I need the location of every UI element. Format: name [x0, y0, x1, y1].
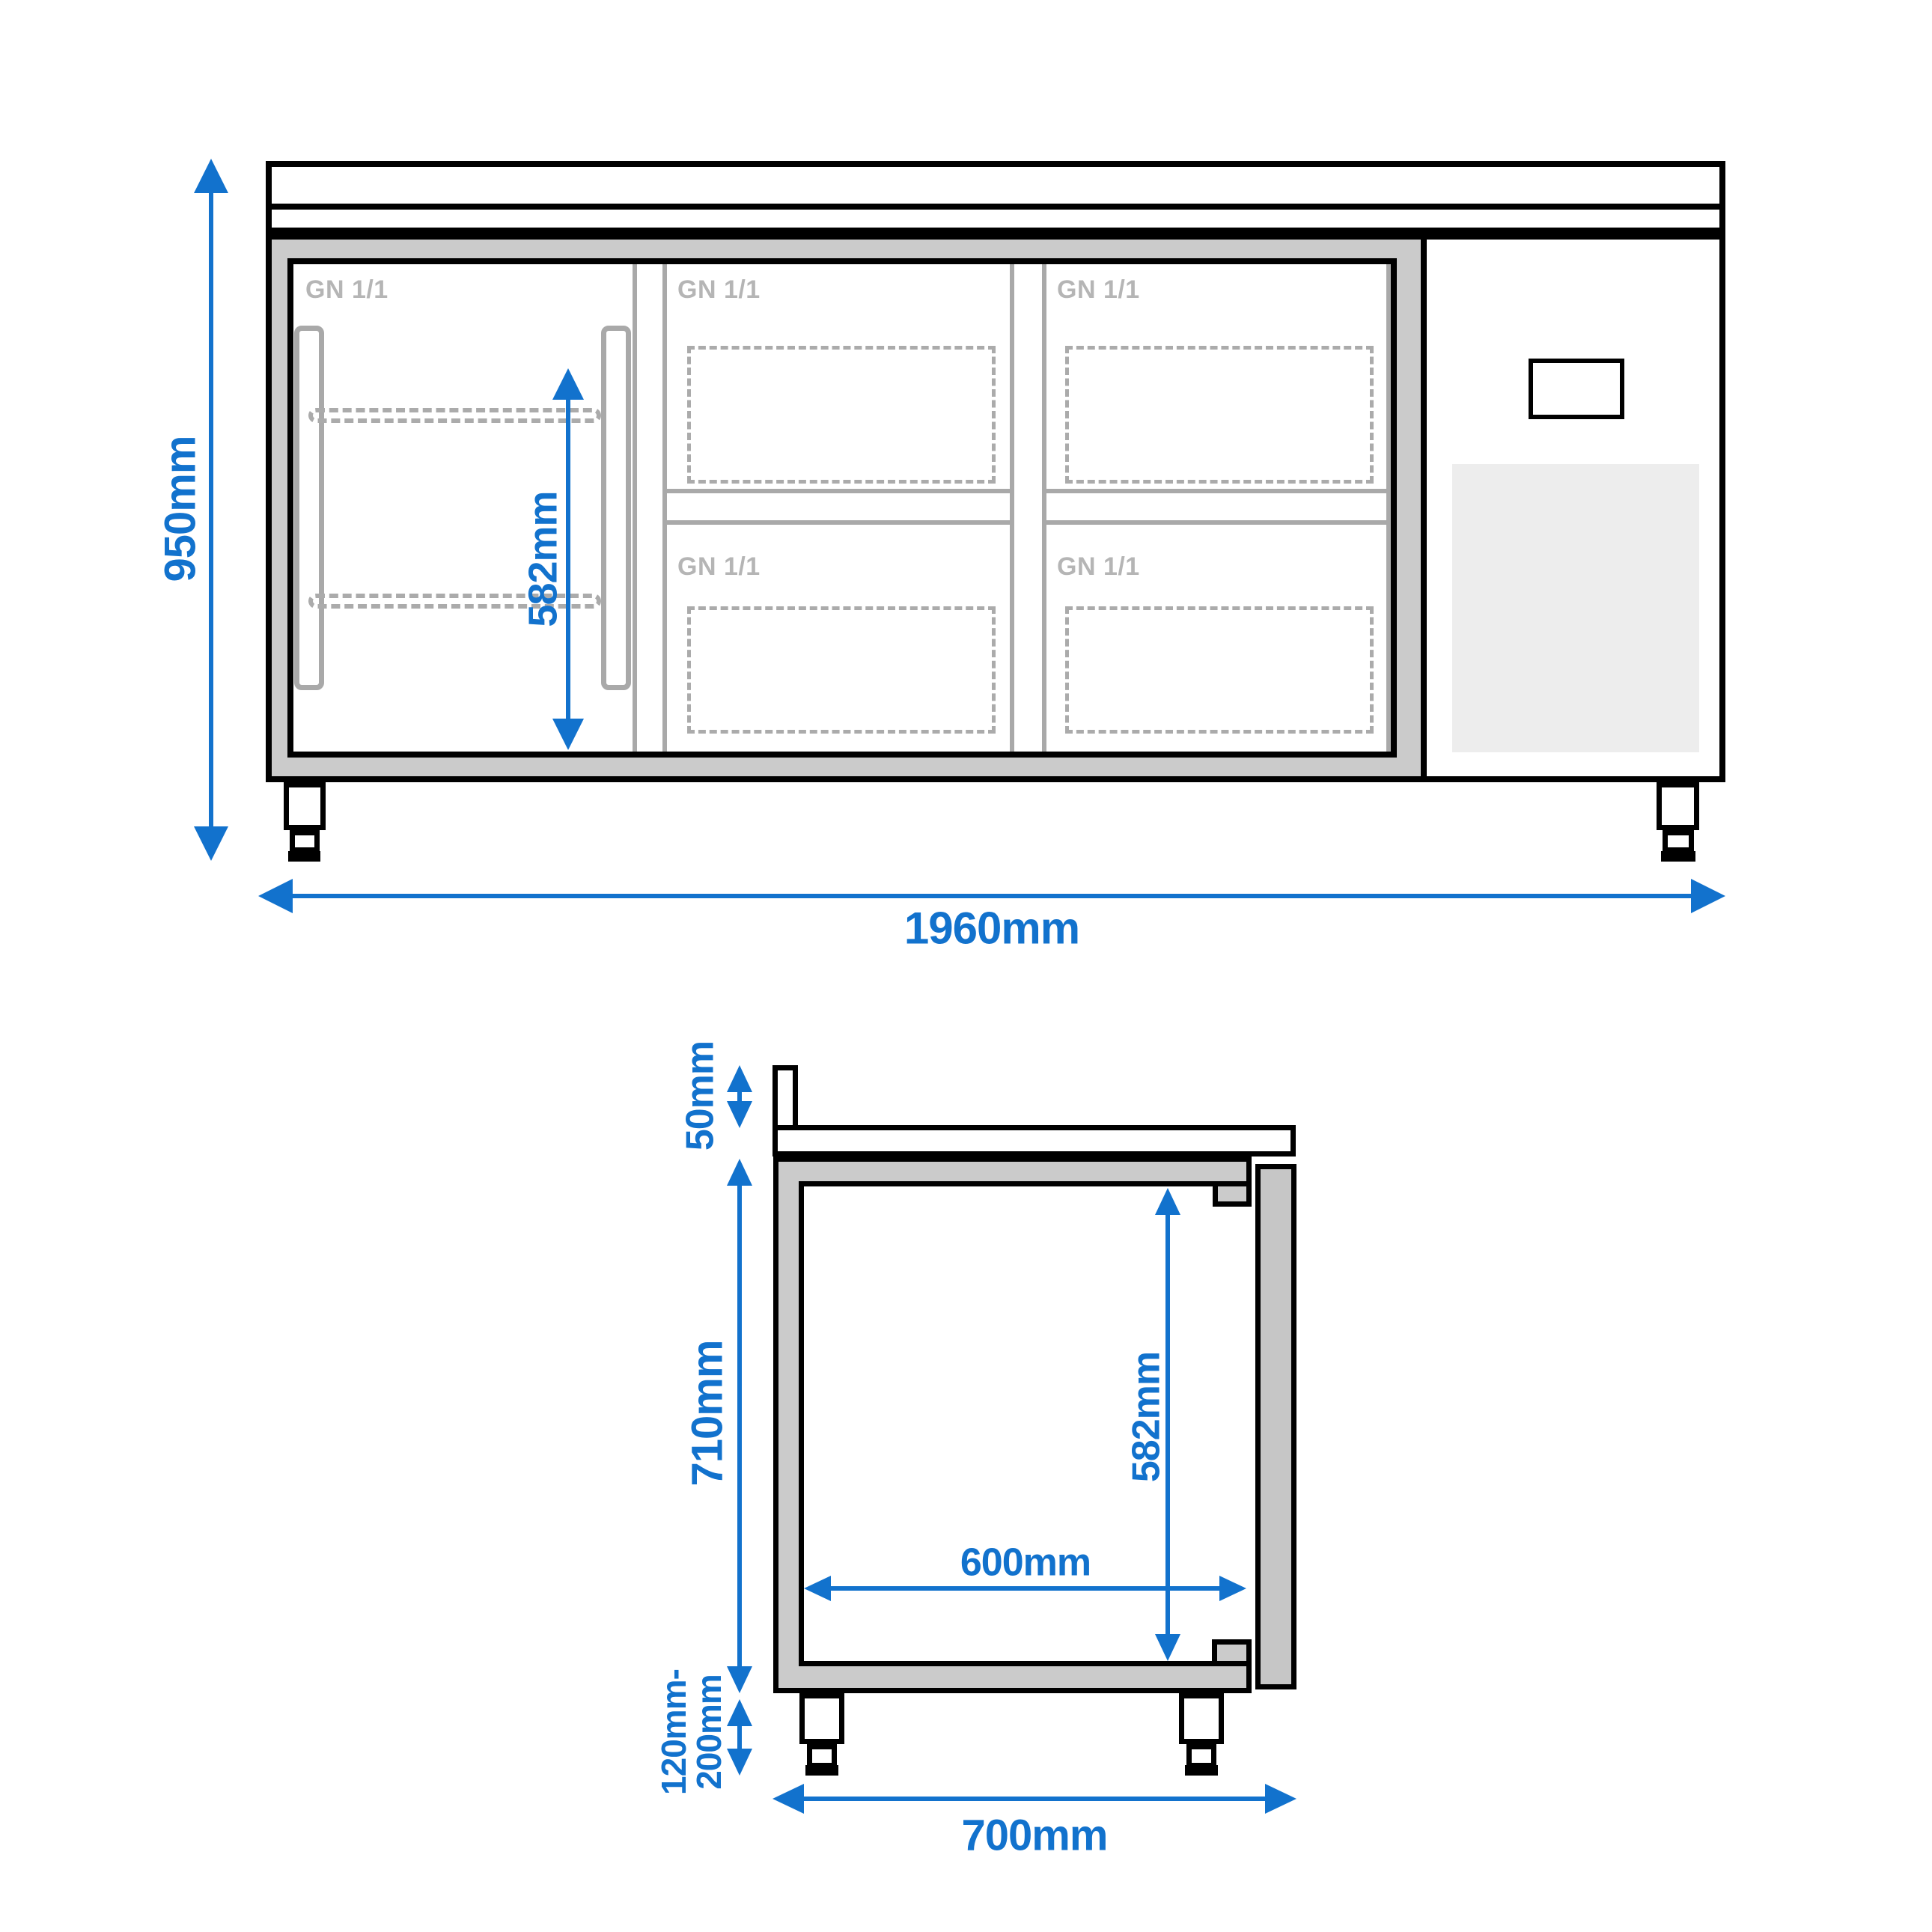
front-vent-grille — [1452, 464, 1699, 752]
arrow-right-icon — [1219, 1576, 1246, 1601]
front-gn-pan-dashed-col2-row1 — [1065, 346, 1374, 484]
arrow-up-icon — [552, 368, 584, 400]
front-gn-pan-dashed-col1-row1 — [687, 346, 996, 484]
arrow-down-icon — [1155, 1634, 1180, 1661]
front-worktop — [266, 161, 1725, 234]
arrow-right-icon — [1265, 1784, 1296, 1814]
arrow-up-icon — [727, 1159, 752, 1186]
front-width-label: 1960mm — [904, 905, 1079, 951]
front-drawer-col1-left-edge — [662, 264, 667, 752]
front-control-display — [1529, 359, 1624, 419]
side-backsplash — [773, 1065, 798, 1130]
side-depth-label: 700mm — [962, 1813, 1108, 1857]
front-gn-label-col2-row1: GN 1/1 — [1057, 275, 1140, 305]
front-view: GN 1/1 GN 1/1 GN 1/1 GN 1/1 GN 1/1 — [0, 0, 1932, 973]
front-gn-label-col1-row1: GN 1/1 — [677, 275, 761, 305]
side-view: 50mm 710mm 582mm 600mm — [0, 973, 1932, 1932]
front-door-shelf-dashed-1 — [308, 408, 601, 423]
front-gn-label-col1-row2: GN 1/1 — [677, 552, 761, 582]
arrow-down-icon — [194, 826, 228, 861]
front-col2-row-divider-top — [1046, 489, 1386, 493]
front-drawer-col2-right-edge — [1386, 264, 1391, 752]
front-col1-row-divider-bottom — [667, 520, 1010, 525]
arrow-left-icon — [804, 1576, 831, 1601]
side-inner-depth-label: 600mm — [960, 1543, 1091, 1582]
technical-drawing-canvas: GN 1/1 GN 1/1 GN 1/1 GN 1/1 GN 1/1 — [0, 0, 1932, 1932]
front-col2-row-divider-bottom — [1046, 520, 1386, 525]
front-col1-row-divider-top — [667, 489, 1010, 493]
arrow-right-icon — [1691, 879, 1725, 913]
arrow-left-icon — [258, 879, 293, 913]
front-gn-label-col2-row2: GN 1/1 — [1057, 552, 1140, 582]
arrow-up-icon — [194, 159, 228, 193]
side-door — [1255, 1164, 1296, 1689]
front-gn-pan-dashed-col2-row2 — [1065, 606, 1374, 734]
front-drawer-col2-left-edge — [1042, 264, 1046, 752]
arrow-down-icon — [727, 1101, 752, 1128]
side-right-edge-top — [1246, 1157, 1252, 1207]
front-gn-pan-dashed-col1-row2 — [687, 606, 996, 734]
arrow-left-icon — [773, 1784, 804, 1814]
front-height-label: 950mm — [158, 436, 202, 582]
arrow-down-icon — [552, 719, 584, 750]
front-gn-label-door: GN 1/1 — [305, 275, 388, 305]
side-inner-height-label: 582mm — [1127, 1352, 1166, 1482]
front-drawer-col1-right-edge — [1010, 264, 1014, 752]
side-right-edge-bottom — [1246, 1639, 1252, 1693]
side-backsplash-label: 50mm — [680, 1041, 720, 1151]
side-inner-compartment — [799, 1181, 1252, 1666]
front-door-handle-right — [601, 326, 631, 690]
side-worktop — [773, 1125, 1296, 1157]
front-door-handle-left — [294, 326, 324, 690]
arrow-down-icon — [727, 1666, 752, 1693]
arrow-down-icon — [727, 1749, 752, 1776]
front-inner-height-label: 582mm — [522, 491, 564, 627]
side-height-label: 710mm — [685, 1341, 729, 1487]
front-door-right-edge — [633, 264, 637, 752]
side-feet-label: 120mm- 200mm — [656, 1669, 727, 1795]
front-worktop-divider-line — [272, 204, 1719, 210]
